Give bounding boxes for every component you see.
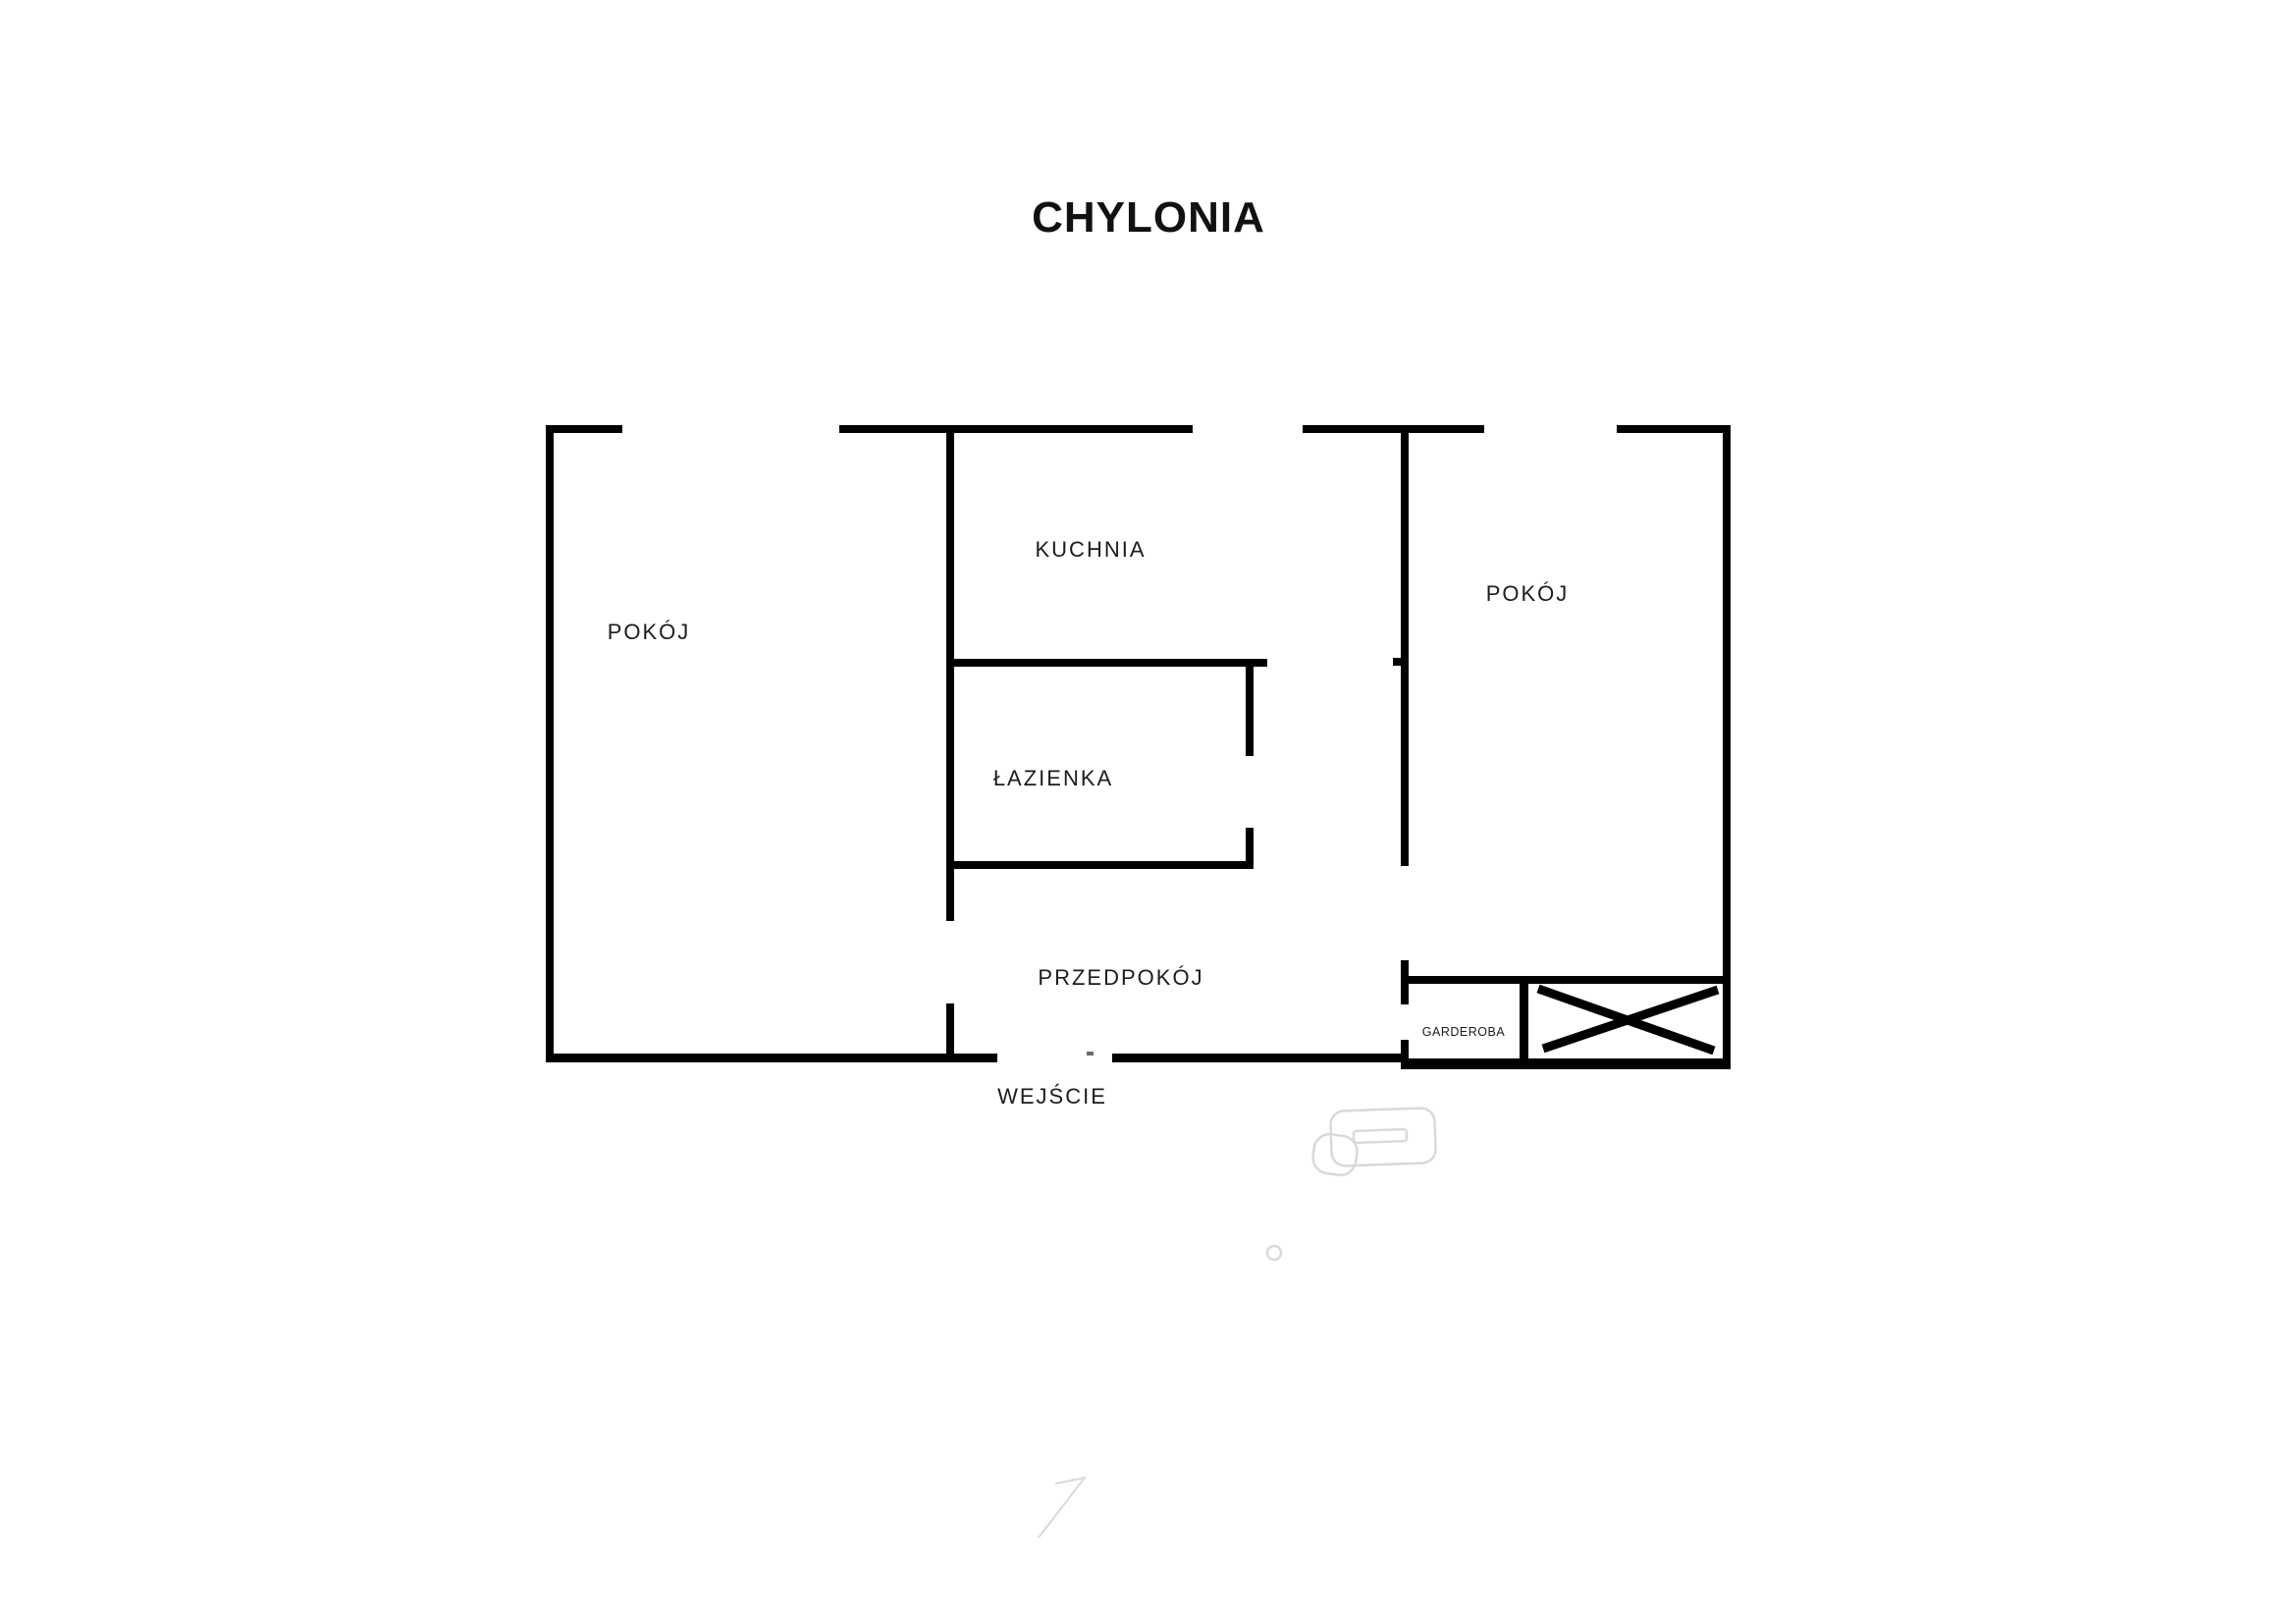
wall-segment xyxy=(1617,425,1731,433)
room-label-pokoj-left: POKÓJ xyxy=(608,620,691,645)
wall-segment xyxy=(546,1054,997,1062)
wall-segment xyxy=(1401,1058,1731,1069)
room-label-lazienka: ŁAZIENKA xyxy=(993,766,1113,791)
wall-segment xyxy=(1401,976,1731,984)
floor-plan-drawing xyxy=(0,0,2296,1624)
room-label-pokoj-right: POKÓJ xyxy=(1486,581,1570,607)
small-circle-outline-icon xyxy=(1267,1246,1281,1260)
wall-segment xyxy=(839,425,1193,433)
wall-segment xyxy=(546,425,554,1062)
wall-segment xyxy=(1246,659,1254,756)
wall-segment xyxy=(1303,425,1484,433)
wall-segment xyxy=(1520,976,1528,1066)
wall-segment xyxy=(1112,1054,1404,1062)
wall-segment xyxy=(1723,425,1731,1069)
room-label-kuchnia: KUCHNIA xyxy=(1035,537,1146,563)
wall-segment xyxy=(946,425,954,921)
watermark-shapes xyxy=(1039,1108,1436,1538)
entrance-label-wejscie: WEJŚCIE xyxy=(997,1084,1107,1110)
entrance-door-mark xyxy=(1087,1052,1094,1056)
wall-segment xyxy=(946,861,1254,869)
wall-segment xyxy=(946,1003,954,1062)
arrow-7-outline-icon xyxy=(1039,1478,1085,1538)
furniture-outline-icon xyxy=(1310,1132,1359,1177)
room-label-przedpokoj: PRZEDPOKÓJ xyxy=(1038,965,1203,991)
room-label-garderoba: GARDEROBA xyxy=(1422,1025,1505,1039)
wardrobe-crossed-box-icon xyxy=(1538,989,1718,1051)
floor-plan-page: CHYLONIA xyxy=(0,0,2296,1624)
wall-segment xyxy=(946,659,1267,667)
furniture-outline-icon xyxy=(1354,1129,1407,1143)
wall-segment xyxy=(1401,425,1409,866)
wall-segment xyxy=(546,425,622,433)
